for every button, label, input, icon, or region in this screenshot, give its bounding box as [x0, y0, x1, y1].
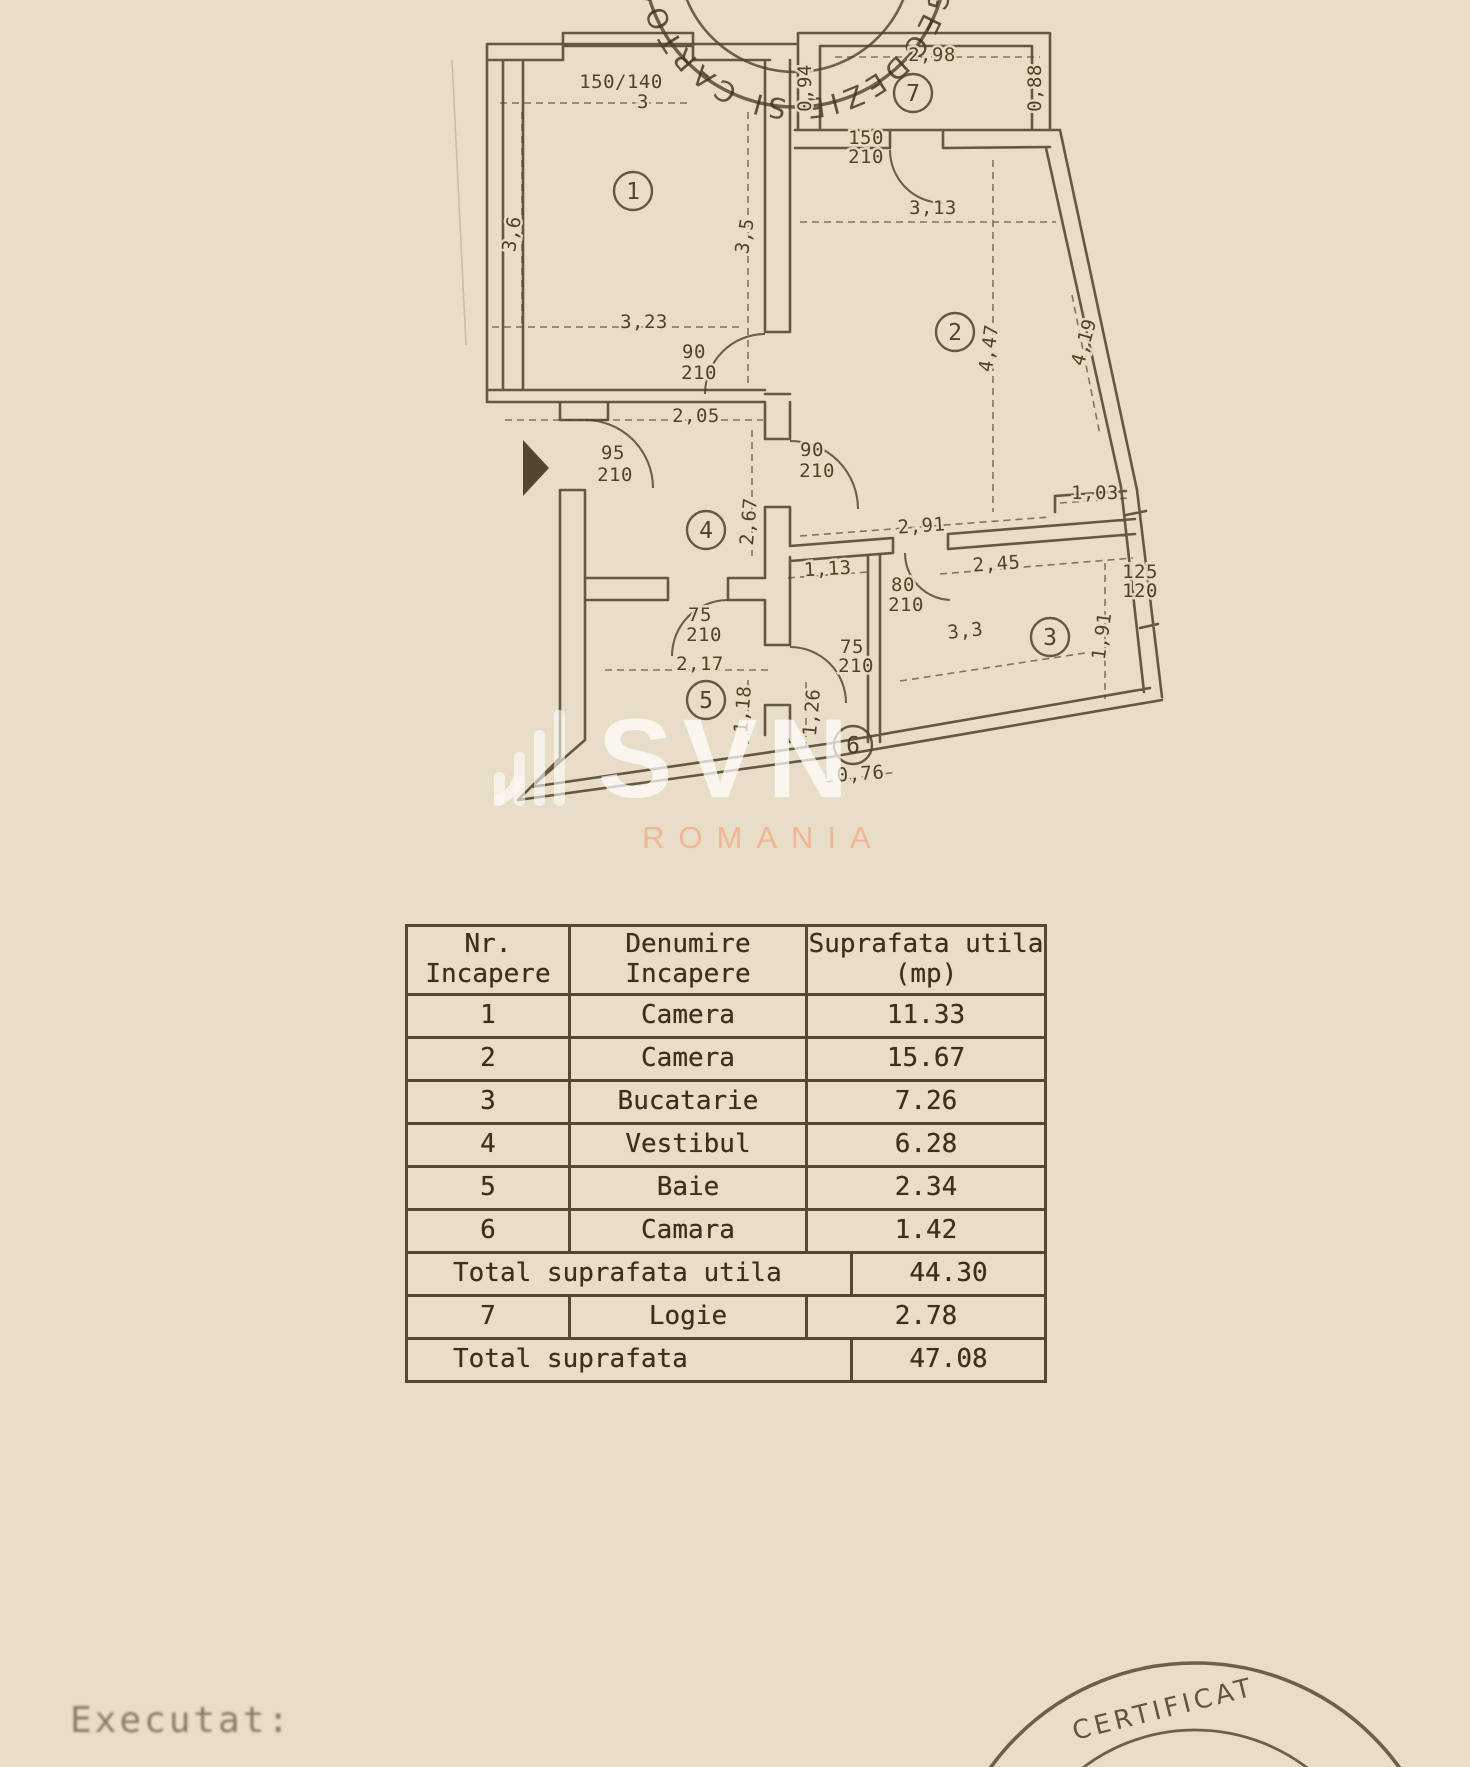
- table-row: 2 Camera 15.67: [408, 1036, 1044, 1079]
- dimension-label: 2,67: [736, 497, 762, 547]
- dimension-label: 2,45: [972, 551, 1021, 576]
- dimension-label: 4,19: [1067, 316, 1101, 368]
- dimension-label: 210: [597, 464, 633, 486]
- dimension-label: 75: [688, 604, 712, 626]
- table-row: 1 Camera 11.33: [408, 993, 1044, 1036]
- scan-scratch: [452, 60, 466, 345]
- dimension-label: 0,94: [794, 64, 816, 112]
- header-denumire-incapere: Denumire Incapere: [571, 927, 808, 993]
- room-area: 2.78: [808, 1297, 1044, 1337]
- table-row: 4 Vestibul 6.28: [408, 1122, 1044, 1165]
- dimension-label: 3,23: [620, 311, 668, 333]
- scanned-floorplan-document: GEODEZIE SI CARTOGRAFIE 150/14032,980,94…: [0, 0, 1470, 1767]
- room-nr: 1: [408, 996, 571, 1036]
- room-nr: 2: [408, 1039, 571, 1079]
- table-row: 6 Camara 1.42: [408, 1208, 1044, 1251]
- entrance-arrow-icon: [523, 440, 549, 496]
- dimension-label: 2,98: [908, 44, 956, 66]
- room-name: Logie: [571, 1297, 808, 1337]
- walls: [487, 33, 1162, 800]
- dimension-label: 90: [800, 439, 824, 461]
- dimension-label: 1,18: [730, 685, 756, 735]
- header-suprafata-utila: Suprafata utila (mp): [808, 927, 1044, 993]
- table-row: 3 Bucatarie 7.26: [408, 1079, 1044, 1122]
- room-number-1: 1: [626, 179, 640, 205]
- total-utila-row: Total suprafata utila 44.30: [408, 1251, 1044, 1294]
- dimension-label: 2,17: [676, 653, 724, 675]
- dimension-label: 80: [891, 574, 915, 596]
- room-name: Baie: [571, 1168, 808, 1208]
- dimension-label: 3,3: [946, 618, 984, 644]
- room-number-6: 6: [846, 733, 860, 759]
- room-name: Vestibul: [571, 1125, 808, 1165]
- dimension-label: 150/140: [579, 71, 663, 93]
- dimension-label: 3,5: [731, 216, 759, 255]
- dimension-label: 210: [681, 362, 717, 384]
- table-header-row: Nr. Incapere Denumire Incapere Suprafata…: [408, 927, 1044, 993]
- room-area: 2.34: [808, 1168, 1044, 1208]
- dimension-label: 90: [682, 341, 706, 363]
- total-utila-label: Total suprafata utila: [408, 1254, 853, 1294]
- room-area: 11.33: [808, 996, 1044, 1036]
- dimension-label: 0,76: [836, 761, 885, 786]
- dimension-label: 210: [799, 460, 835, 482]
- dimension-label: 2,91: [897, 513, 946, 538]
- room-name: Camera: [571, 1039, 808, 1079]
- dimension-label: 210: [888, 594, 924, 616]
- room-nr: 3: [408, 1082, 571, 1122]
- room-nr: 5: [408, 1168, 571, 1208]
- room-areas-table: Nr. Incapere Denumire Incapere Suprafata…: [405, 924, 1047, 1383]
- dimension-label: 210: [848, 146, 884, 168]
- dimension-label: 120: [1122, 580, 1158, 602]
- dimension-label: 210: [838, 655, 874, 677]
- room-number-4: 4: [699, 518, 713, 544]
- room-nr: 7: [408, 1297, 571, 1337]
- executed-by-label: Executat:: [70, 1700, 292, 1741]
- room-number-2: 2: [948, 320, 962, 346]
- dimension-label: 1,26: [799, 688, 825, 738]
- dimension-label: 3: [637, 91, 649, 113]
- dimension-label: 3,13: [909, 197, 957, 219]
- dimension-label: 95: [601, 442, 625, 464]
- table-row: 7 Logie 2.78: [408, 1294, 1044, 1337]
- room-area: 6.28: [808, 1125, 1044, 1165]
- bottom-round-stamp: ADMINISTRATIEI CERTIFICAT: [943, 1663, 1447, 1767]
- dimension-labels: 150/14032,980,940,881502103,133,63,53,23…: [498, 44, 1158, 787]
- floorplan-drawing: GEODEZIE SI CARTOGRAFIE 150/14032,980,94…: [0, 0, 1470, 1767]
- room-area: 1.42: [808, 1211, 1044, 1251]
- dimension-label: 210: [686, 624, 722, 646]
- dimension-label: 0,88: [1024, 64, 1046, 112]
- dimension-label: 1,03: [1071, 482, 1119, 504]
- header-nr-incapere: Nr. Incapere: [408, 927, 571, 993]
- room-number-5: 5: [699, 688, 713, 714]
- room-area: 7.26: [808, 1082, 1044, 1122]
- room-name: Camera: [571, 996, 808, 1036]
- room-number-7: 7: [906, 81, 920, 107]
- room-nr: 4: [408, 1125, 571, 1165]
- table-row: 5 Baie 2.34: [408, 1165, 1044, 1208]
- room-name: Camara: [571, 1211, 808, 1251]
- room-area: 15.67: [808, 1039, 1044, 1079]
- room-number-3: 3: [1043, 625, 1057, 651]
- dimension-label: 2,05: [672, 405, 720, 427]
- room-name: Bucatarie: [571, 1082, 808, 1122]
- total-value: 47.08: [853, 1340, 1044, 1380]
- dimension-label: 1,13: [803, 557, 852, 581]
- room-nr: 6: [408, 1211, 571, 1251]
- total-label: Total suprafata: [408, 1340, 853, 1380]
- total-row: Total suprafata 47.08: [408, 1337, 1044, 1380]
- door-arcs: [585, 150, 950, 703]
- total-utila-value: 44.30: [853, 1254, 1044, 1294]
- dimension-label: 1,91: [1088, 611, 1116, 661]
- dimension-label: 4,47: [975, 323, 1003, 373]
